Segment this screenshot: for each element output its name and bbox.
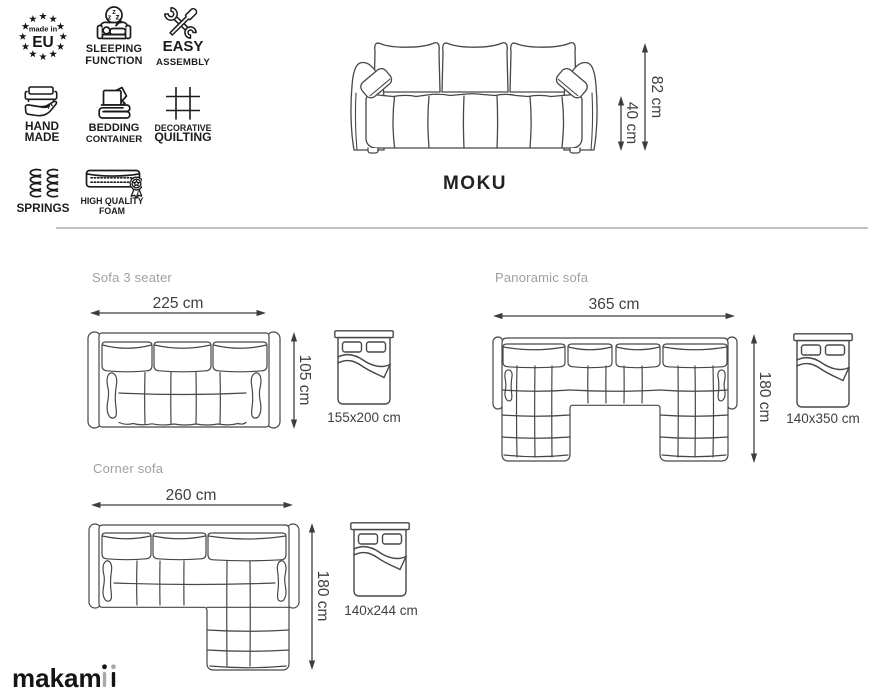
svg-text:z: z — [108, 15, 112, 22]
svg-text:z: z — [115, 12, 119, 22]
svg-text:made in: made in — [29, 25, 58, 34]
svg-text:makam: makam — [12, 663, 102, 693]
svg-text:EU: EU — [32, 34, 54, 51]
